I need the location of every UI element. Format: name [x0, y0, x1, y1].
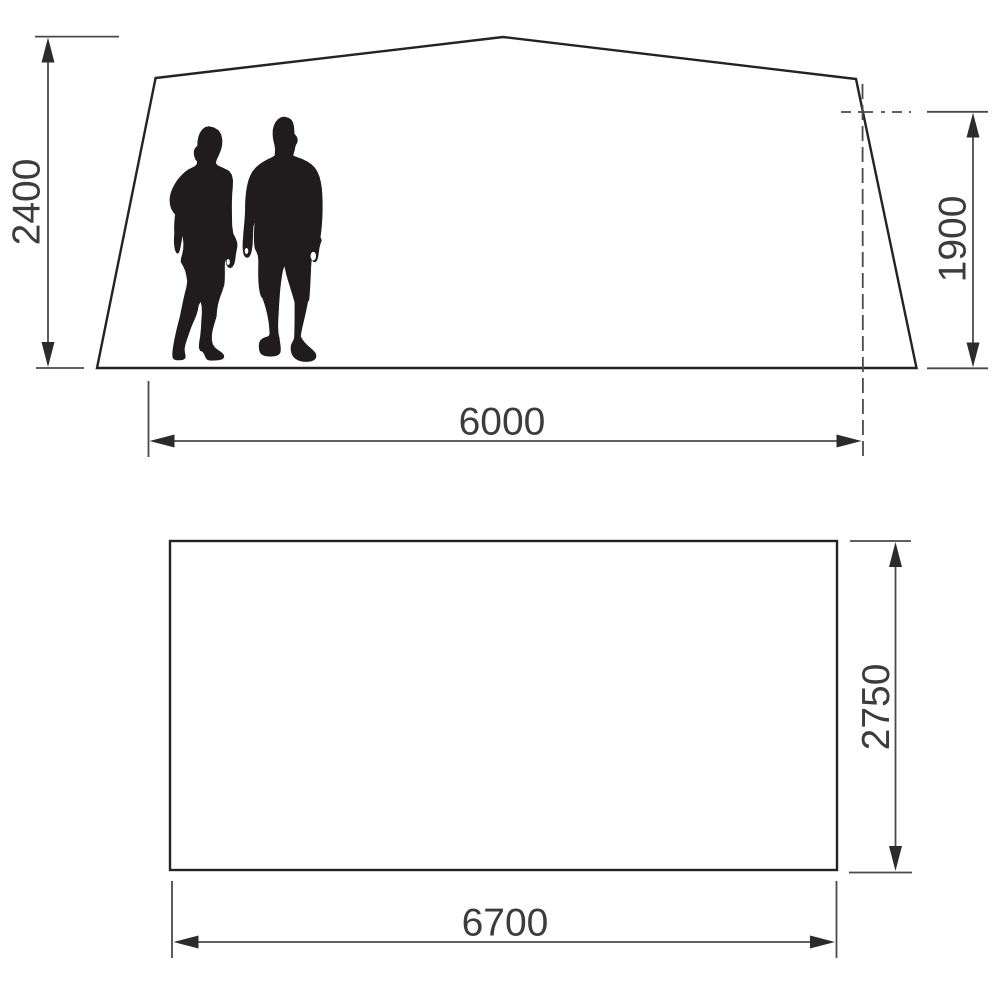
svg-text:2400: 2400 — [6, 159, 49, 246]
svg-text:6000: 6000 — [459, 401, 546, 444]
svg-text:2750: 2750 — [855, 664, 898, 751]
svg-text:1900: 1900 — [932, 196, 975, 283]
svg-text:6700: 6700 — [462, 902, 549, 945]
